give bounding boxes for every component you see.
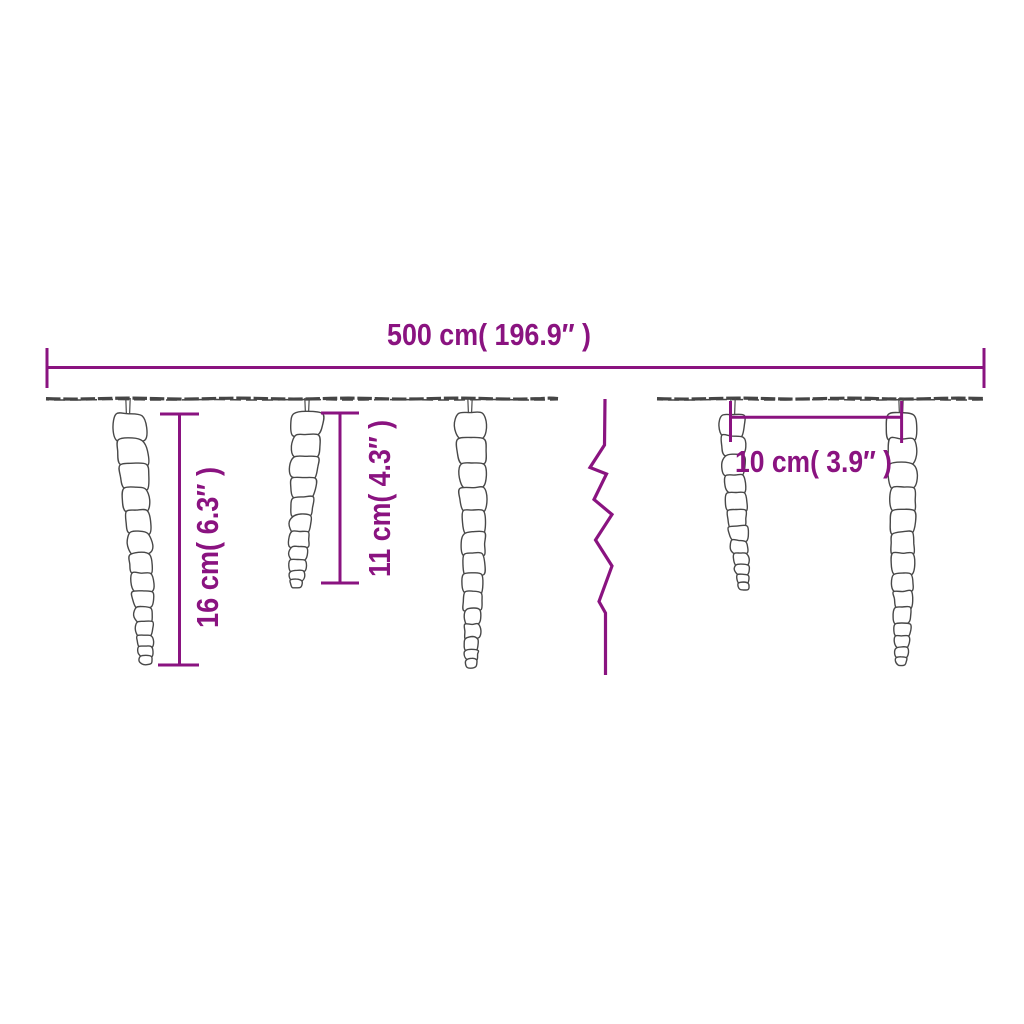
svg-text:500 cm( 196.9″ ): 500 cm( 196.9″ ) xyxy=(387,317,591,352)
svg-text:11 cm( 4.3″ ): 11 cm( 4.3″ ) xyxy=(362,420,397,577)
svg-text:10 cm( 3.9″ ): 10 cm( 3.9″ ) xyxy=(735,444,892,479)
svg-text:16 cm( 6.3″ ): 16 cm( 6.3″ ) xyxy=(190,467,225,628)
